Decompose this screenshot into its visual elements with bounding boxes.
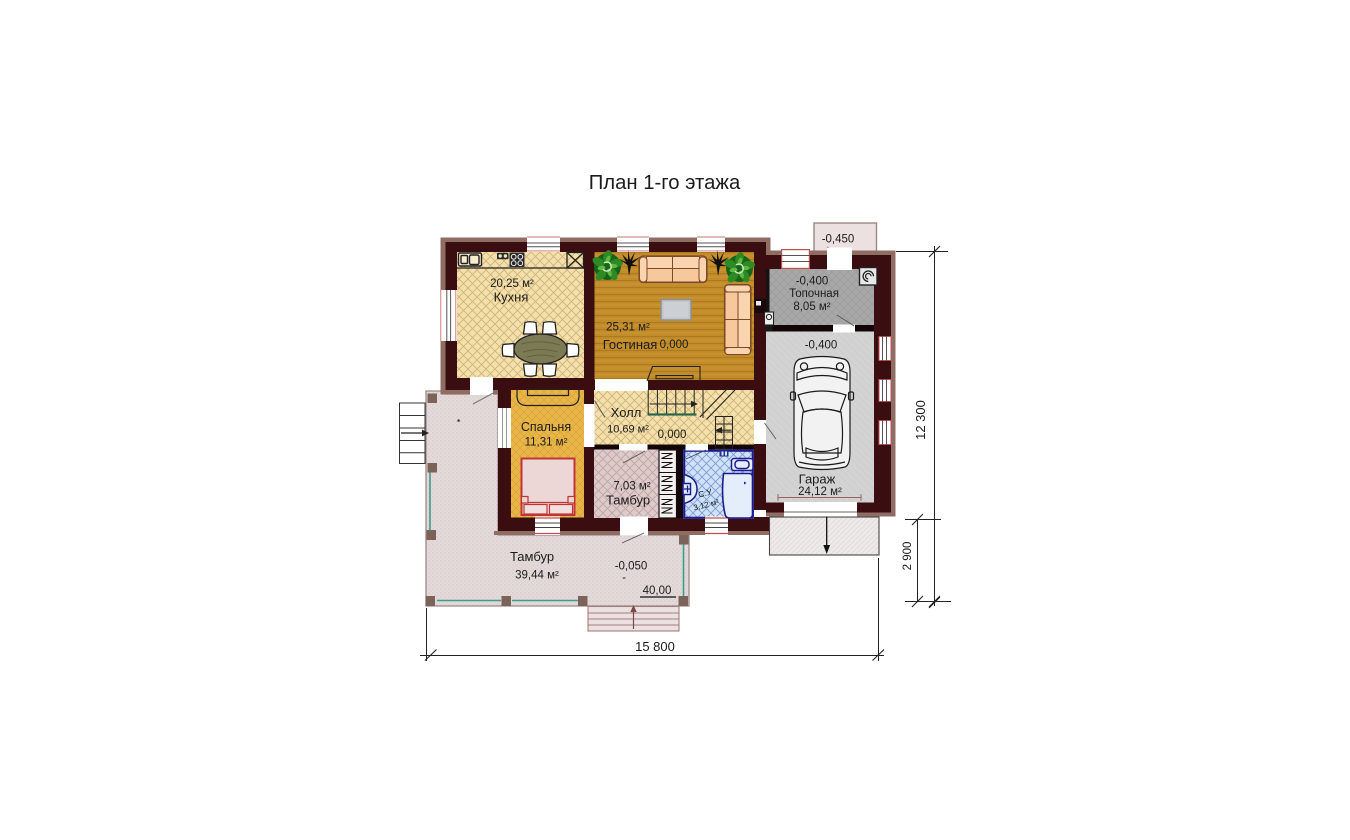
svg-text:10,69 м²: 10,69 м² bbox=[607, 424, 649, 436]
svg-text:8,05 м²: 8,05 м² bbox=[793, 301, 830, 313]
svg-text:-0,450: -0,450 bbox=[822, 234, 855, 246]
svg-text:15 800: 15 800 bbox=[635, 639, 675, 654]
svg-text:25,31 м²: 25,31 м² bbox=[606, 322, 650, 334]
svg-text:12 300: 12 300 bbox=[913, 400, 928, 440]
svg-text:-0,400: -0,400 bbox=[805, 340, 838, 352]
svg-text:2 900: 2 900 bbox=[902, 542, 914, 571]
svg-text:Тамбур: Тамбур bbox=[606, 493, 650, 508]
svg-text:Гостиная: Гостиная bbox=[603, 337, 658, 352]
svg-text:Тамбур: Тамбур bbox=[510, 549, 554, 564]
svg-text:39,44 м²: 39,44 м² bbox=[515, 570, 559, 582]
svg-text:40,00: 40,00 bbox=[643, 585, 672, 597]
svg-text:План 1-го этажа: План 1-го этажа bbox=[589, 172, 741, 194]
svg-text:11,31 м²: 11,31 м² bbox=[525, 437, 568, 449]
svg-text:24,12 м²: 24,12 м² bbox=[798, 486, 842, 498]
svg-text:Кухня: Кухня bbox=[494, 290, 529, 305]
svg-text:0,000: 0,000 bbox=[660, 339, 689, 351]
svg-text:7,03 м²: 7,03 м² bbox=[613, 481, 650, 493]
svg-text:Топочная: Топочная bbox=[789, 288, 839, 300]
svg-text:-: - bbox=[622, 572, 626, 584]
svg-text:-0,400: -0,400 bbox=[796, 276, 829, 288]
svg-text:Гараж: Гараж bbox=[799, 472, 836, 487]
svg-text:Холл: Холл bbox=[611, 405, 642, 420]
svg-text:-0,050: -0,050 bbox=[615, 561, 648, 573]
svg-text:20,25 м²: 20,25 м² bbox=[490, 278, 534, 290]
svg-text:0,000: 0,000 bbox=[658, 429, 687, 441]
svg-text:Спальня: Спальня bbox=[521, 420, 571, 434]
